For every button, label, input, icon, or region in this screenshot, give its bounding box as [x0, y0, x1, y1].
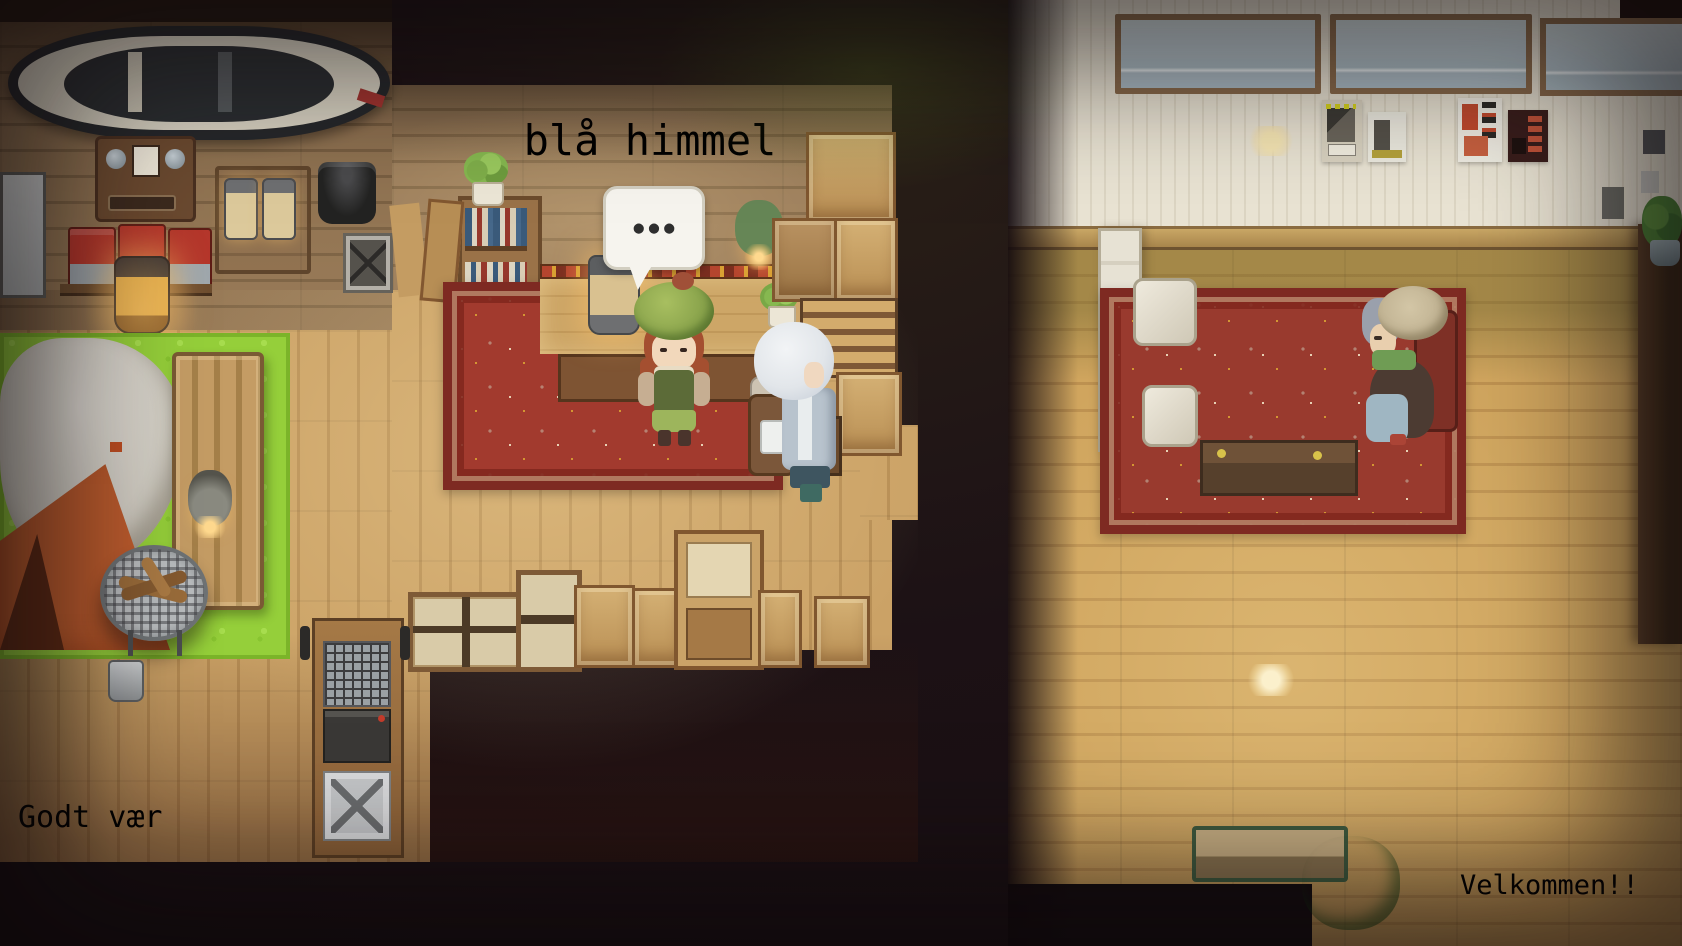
cafe-window: [1540, 18, 1682, 96]
floor-sign-left-text: Godt vær: [18, 800, 163, 835]
cart-handle: [400, 626, 410, 660]
floor-sign-right-text: Velkommen!!: [1460, 870, 1639, 901]
shopkeeper-beret: [634, 282, 714, 340]
camp-stove: [168, 228, 212, 289]
cafe-window: [1330, 14, 1532, 94]
shopkeeper-npc[interactable]: [630, 272, 720, 448]
poster-art: [1327, 108, 1355, 142]
counter-shrub-pot: [1650, 240, 1680, 266]
floor-crate: [836, 372, 902, 456]
customer-shoe: [1390, 434, 1406, 445]
box-fan: [343, 233, 393, 293]
cabinet-door: [686, 608, 752, 660]
shopkeeper-boot: [678, 430, 691, 446]
picture-frame: [1135, 158, 1181, 216]
picture-photo: [1224, 174, 1246, 206]
canoe: [8, 26, 390, 140]
hanging-lantern: [262, 178, 296, 240]
tripod-kettle: [108, 660, 144, 702]
cafe-floor-dark-edge: [1008, 884, 1312, 946]
fan-cross-icon: [331, 779, 383, 833]
picture-frame: [1217, 166, 1253, 214]
poster-art: [1462, 104, 1478, 130]
radio-knob: [106, 149, 126, 169]
wall-crate: [834, 218, 898, 302]
shop-roof-edge: [0, 0, 392, 22]
player-character[interactable]: [748, 318, 840, 504]
poster-art: [1464, 136, 1488, 156]
player-face: [804, 362, 824, 388]
bench-item: [1217, 449, 1226, 458]
floor-sign-left[interactable]: Godt vær: [18, 800, 190, 882]
player-hair: [754, 322, 834, 400]
cafe-roof-corner: [1620, 0, 1682, 18]
cart-handle: [300, 626, 310, 660]
red-chair[interactable]: [1116, 782, 1156, 834]
speech-bubble-dots: ●●●: [629, 218, 680, 238]
booth-table[interactable]: [1188, 222, 1358, 468]
poster-art: [1374, 120, 1390, 150]
red-chair-seat: [1114, 832, 1160, 860]
picture-frame: [1595, 180, 1631, 226]
red-chair[interactable]: [1354, 698, 1394, 750]
poster-shelf: [1312, 160, 1444, 198]
shelf-plant-pot: [472, 182, 504, 206]
book-row: [465, 208, 527, 251]
picture-photo: [1641, 171, 1659, 193]
poster: [1368, 112, 1406, 162]
player-scarf-tail: [800, 484, 822, 502]
hanging-lantern: [224, 178, 258, 240]
shopkeeper-arm: [692, 372, 710, 406]
bar-chair-seat: [1563, 449, 1635, 507]
poster-label: [1328, 144, 1356, 156]
booth-bench-south: [1200, 440, 1358, 496]
gear-cart: [312, 618, 404, 858]
red-chair[interactable]: [1108, 618, 1148, 670]
poster-art: [1528, 116, 1542, 156]
wall-crate-large: [806, 132, 896, 224]
customer-scarf: [1372, 350, 1416, 370]
shopkeeper-eye: [680, 348, 687, 352]
poster-art: [1512, 138, 1526, 154]
whiteboard-panel: [0, 172, 46, 298]
bar-chair[interactable]: [1545, 345, 1639, 431]
red-chair-seat: [1106, 668, 1152, 698]
picture-photo: [1643, 130, 1665, 154]
south-cabinet: [674, 530, 764, 670]
radio-knob: [165, 149, 185, 169]
speech-bubble[interactable]: ●●●: [603, 186, 705, 270]
bar-chair-seat: [1563, 265, 1635, 323]
radio-speaker-band: [108, 195, 176, 211]
pendant-lamp-teal: [1218, 56, 1324, 160]
shopkeeper-eye: [660, 348, 667, 352]
game-scene: blå himmel ●●● Godt vær: [0, 0, 1682, 946]
shopkeeper-vest: [654, 366, 694, 414]
long-table[interactable]: [1188, 640, 1352, 832]
bench-item: [1313, 451, 1322, 460]
cart-fan-box: [323, 771, 391, 841]
beret-puff: [672, 272, 694, 290]
bar-chair-seat: [1563, 357, 1635, 415]
customer-hat: [1378, 286, 1448, 340]
floor-shrub: [1302, 836, 1400, 930]
floor-sign-right[interactable]: Velkommen!!: [1460, 870, 1638, 940]
radio-display: [132, 145, 160, 177]
shop-sign: blå himmel: [500, 116, 800, 165]
south-crate: [574, 585, 635, 668]
window-mullion: [521, 615, 577, 623]
customer-eye: [1374, 336, 1382, 340]
poster-art: [1372, 150, 1402, 158]
red-chair-seat: [1356, 666, 1402, 696]
cooking-pot: [318, 162, 376, 224]
radio: [95, 136, 196, 222]
poster: [1322, 100, 1362, 162]
window-mullion: [413, 626, 519, 633]
grill-indicator: [378, 715, 385, 722]
picture-photo: [1602, 187, 1624, 219]
cart-mesh: [323, 641, 391, 707]
cart-grill: [323, 709, 391, 763]
cabinet-panel: [686, 542, 752, 598]
picture-frame: [1636, 166, 1664, 198]
poster-dots: [1326, 104, 1356, 109]
poster-shelf: [1452, 160, 1570, 198]
fan-blades-icon: [350, 240, 386, 286]
red-chair[interactable]: [1350, 780, 1390, 832]
bench-lantern: [188, 470, 232, 526]
poster: [1508, 110, 1548, 162]
shopkeeper-skirt: [652, 410, 696, 432]
camp-stove: [68, 227, 116, 289]
display-window-tall: [516, 570, 582, 672]
hanging-lamp-warm: [114, 256, 170, 334]
red-chair-seat: [1110, 750, 1156, 780]
south-crate: [814, 596, 870, 668]
canoe-thwart: [218, 52, 232, 112]
display-window-frame: [408, 592, 524, 672]
shopkeeper-boot: [658, 430, 671, 446]
canoe-thwart: [128, 52, 142, 112]
tent-guy-point: [110, 442, 122, 452]
picture-frame: [1637, 124, 1671, 160]
bar-counter: [1638, 224, 1682, 644]
bar-chair[interactable]: [1545, 437, 1639, 523]
poster: [1458, 98, 1502, 162]
red-chair[interactable]: [1358, 616, 1398, 668]
wall-crate: [772, 218, 838, 302]
south-crate: [758, 590, 802, 668]
red-chair-seat: [1352, 748, 1398, 778]
elderly-customer-npc[interactable]: [1356, 284, 1452, 450]
picture-photo: [1143, 168, 1173, 206]
bar-chair[interactable]: [1545, 253, 1639, 339]
player-strap: [798, 394, 812, 460]
character-shadow: [642, 430, 708, 448]
red-chair[interactable]: [1112, 700, 1152, 752]
canoe-hull: [64, 46, 334, 122]
